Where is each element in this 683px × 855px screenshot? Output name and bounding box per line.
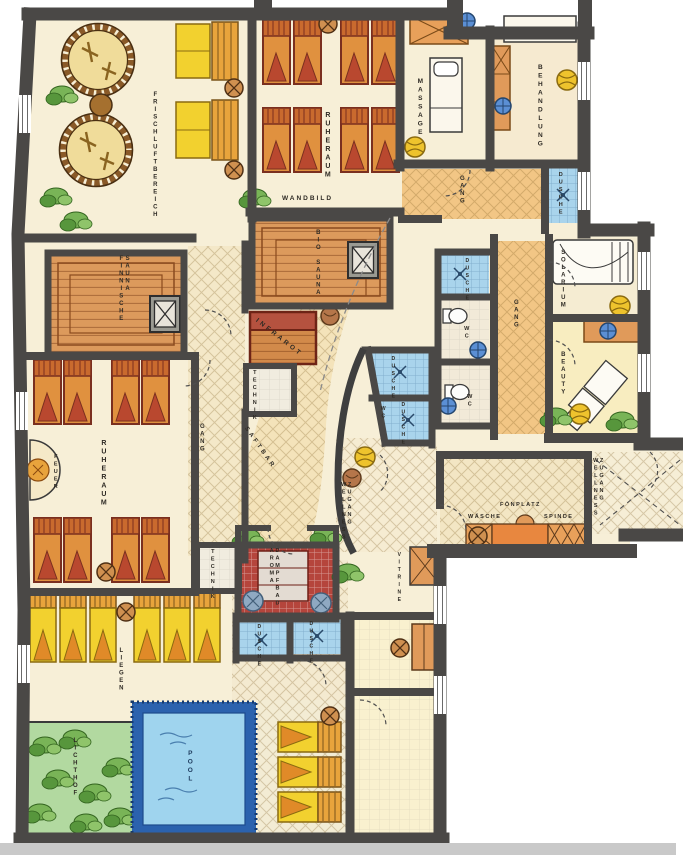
- vent-icon: [469, 527, 487, 545]
- room-label-dusche-center-2: DUSCHE: [400, 402, 405, 442]
- sink-icon: [495, 98, 511, 114]
- room-aroma-dampfbad: [240, 547, 334, 617]
- lounger-icon: [263, 20, 290, 84]
- room-lichthof: [24, 722, 136, 834]
- room-label-aroma-dampfbad: AROMA DAMPFBAD: [268, 548, 280, 596]
- hot-tub-icon: [60, 114, 133, 187]
- gym-ball-icon: [355, 447, 375, 467]
- hot-tub-icon: [62, 24, 135, 97]
- room-label-feuer: FEUER: [52, 454, 58, 496]
- scan-band: [0, 843, 676, 855]
- room-label-vitrine: VITRINE: [396, 552, 401, 592]
- room-label-gang-left: GANG: [199, 424, 205, 462]
- pool: [132, 702, 256, 836]
- room-label-pool: POOL: [186, 750, 193, 788]
- room-label-wc-1: WC: [463, 326, 469, 346]
- room-label-zugang-wellness-entrance: ZUGANG WELLNESS: [592, 458, 604, 516]
- sauna-stove-icon: [150, 296, 180, 332]
- floor-plan-drawing: [0, 0, 683, 855]
- toilet-icon: [443, 309, 467, 324]
- stool-icon: [321, 307, 339, 325]
- sink-icon: [440, 398, 456, 414]
- room-label-finnische-sauna: FINNISCHE SAUNA: [118, 256, 131, 314]
- room-label-dusche-center-1: DUSCHE: [390, 356, 395, 396]
- room-label-solarium: SOLARIUM: [560, 250, 566, 318]
- room-label-wc-2: WC: [466, 394, 472, 414]
- room-label-wc-center: WC: [380, 406, 385, 426]
- room-label-wandbild: WANDBILD: [282, 196, 333, 203]
- room-label-frischluftbereich: FRISCHLUFTBEREICH: [152, 92, 158, 216]
- side-table-icon: [90, 94, 112, 116]
- room-label-dusche-right: DUSCHE: [464, 258, 469, 296]
- gym-ball-icon: [610, 296, 630, 316]
- room-dusche-top-right: [547, 167, 581, 223]
- room-label-technik-left: TECHNIK: [209, 549, 215, 593]
- room-label-zugang-wellness-center: ZUGANG WELLNESS: [340, 482, 352, 540]
- room-finnische-sauna: [48, 253, 184, 355]
- sink-icon: [600, 323, 616, 339]
- room-label-foenplatz: FÖNPLATZ: [500, 503, 541, 509]
- room-label-dusche-top-right: DUSCHE: [557, 172, 563, 220]
- room-label-liegen: LIEGEN: [118, 648, 124, 692]
- room-label-beauty: BEAUTY: [560, 352, 566, 404]
- floor-plan: FRISCHLUFTBEREICH RUHERAUM WANDBILD MASS…: [0, 0, 683, 855]
- lounger-icon: [30, 590, 56, 662]
- room-label-technik-center: TECHNIK: [251, 370, 257, 414]
- room-label-ruheraum-top: RUHERAUM: [324, 112, 331, 186]
- room-label-dusche-bottom-1: DUSCHE: [256, 624, 261, 660]
- stool-icon: [570, 404, 590, 424]
- room-label-dusche-bottom-2: DUSCHE: [308, 621, 313, 657]
- stool-icon: [557, 70, 577, 90]
- room-label-lichthof: LICHTHOF: [72, 738, 78, 796]
- room-label-massage: MASSAGE: [416, 78, 423, 142]
- sink-icon: [470, 342, 486, 358]
- room-wc-2: [439, 364, 491, 424]
- room-label-ruheraum-left: RUHERAUM: [100, 440, 107, 514]
- room-label-gang-top: GANG: [459, 176, 465, 216]
- sauna-stove-icon: [348, 242, 378, 278]
- room-label-behandlung: BEHANDLUNG: [536, 64, 543, 150]
- room-label-bio-sauna: BIO SAUNA: [315, 230, 321, 310]
- room-label-gang-right: GANG: [513, 300, 519, 340]
- room-label-waesche: WÄSCHE: [468, 515, 501, 521]
- room-label-spinde: SPINDE: [544, 515, 573, 521]
